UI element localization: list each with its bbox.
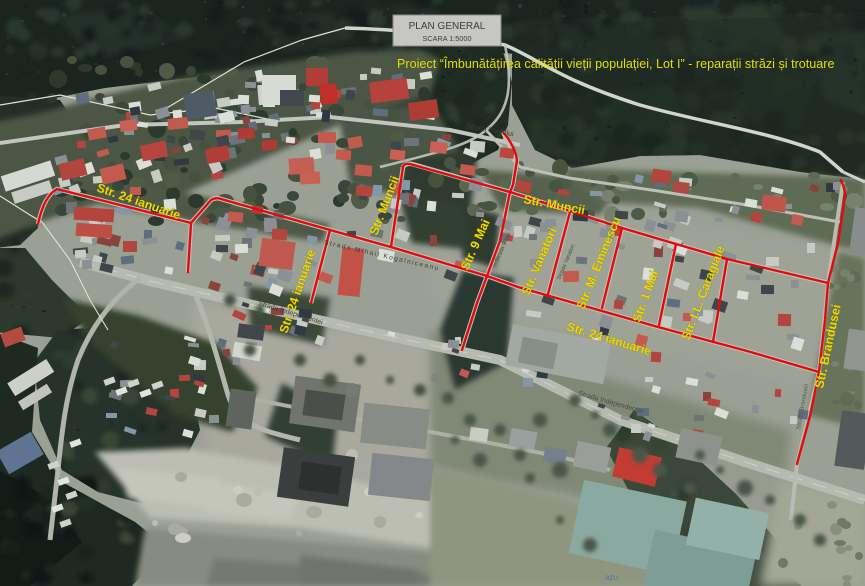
svg-text:azu: azu <box>605 573 618 582</box>
svg-text:PLAN GENERAL: PLAN GENERAL <box>409 21 486 32</box>
svg-text:SCARA 1:5000: SCARA 1:5000 <box>422 34 471 43</box>
svg-text:Proiect “Îmbunătățirea cal: Proiect “Îmbunătățirea calității v… <box>397 56 834 71</box>
